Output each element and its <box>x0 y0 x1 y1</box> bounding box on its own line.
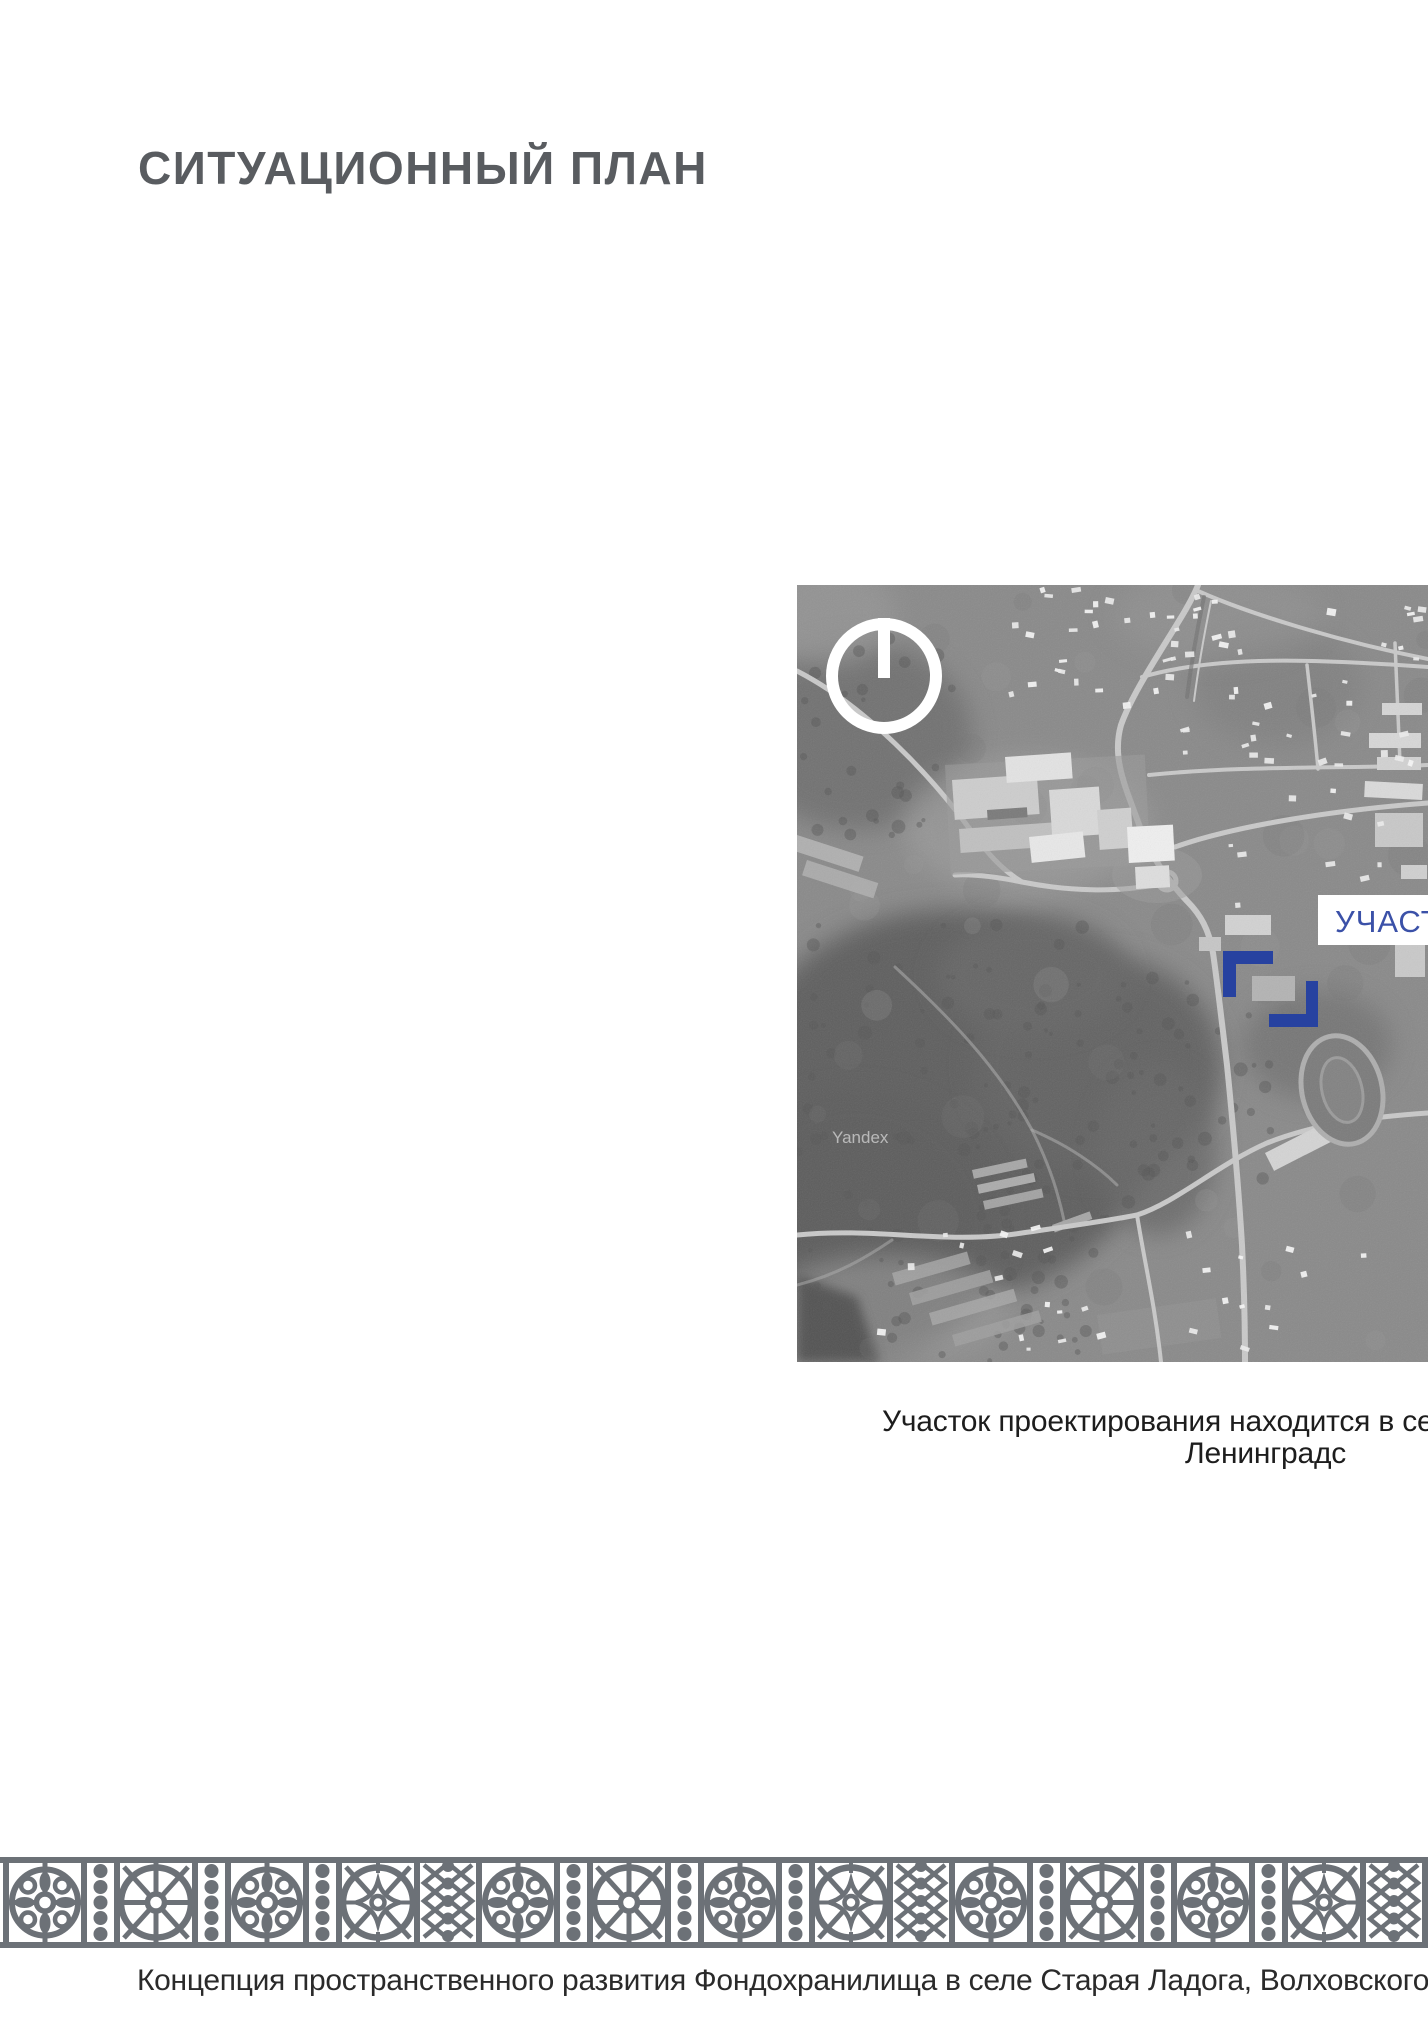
map-caption-line-2: Ленинградс <box>1185 1437 1346 1471</box>
footer-text: Концепция пространственного развития Фон… <box>137 1964 1428 1998</box>
map-caption-line-1: Участок проектирования находится в се <box>882 1405 1428 1439</box>
map-watermark: Yandex <box>832 1128 889 1147</box>
grain-overlay <box>797 585 1428 1362</box>
situational-map: Yandex УЧАСТ <box>797 585 1428 1362</box>
site-label-text: УЧАСТ <box>1335 904 1428 939</box>
page-title: СИТУАЦИОННЫЙ ПЛАН <box>138 141 708 195</box>
site-label: УЧАСТ <box>1318 895 1428 945</box>
ornament-border <box>0 1857 1428 1948</box>
